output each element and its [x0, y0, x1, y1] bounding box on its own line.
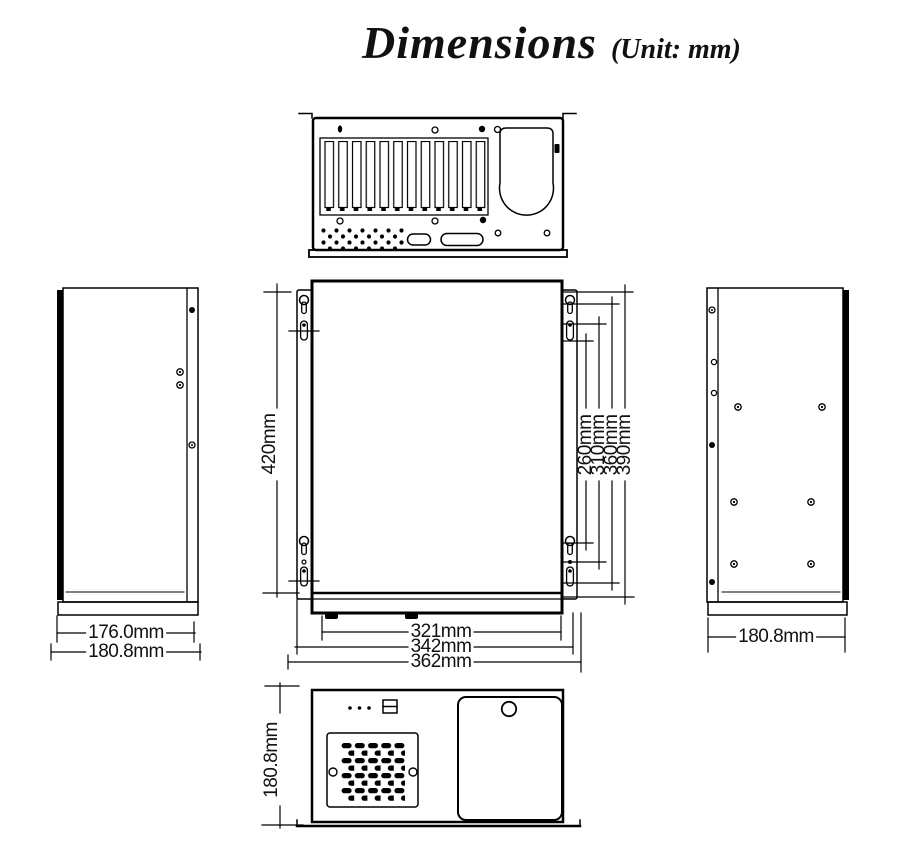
left-mount-flange: [297, 290, 312, 599]
dimension-lines: [51, 284, 845, 828]
dim-label-362mm: 362mm: [409, 653, 474, 671]
db25-connector: [441, 234, 483, 246]
rubber-foot: [405, 613, 418, 619]
left-view-base: [58, 602, 198, 615]
right-side-view: [707, 288, 849, 615]
psu-cutout: [500, 128, 554, 215]
dim-label-180.8mm-left: 180.8mm: [86, 643, 166, 661]
lock-hole: [502, 702, 516, 716]
top-rear-view: [299, 114, 576, 258]
dimensions-page: Dimensions (Unit: mm): [0, 0, 902, 868]
dimension-drawing: [0, 0, 902, 868]
left-keyhole-slots: [289, 296, 319, 587]
rear-left-flange-tab: [299, 114, 312, 119]
right-view-panel: [707, 288, 843, 602]
expansion-slots: [320, 138, 488, 215]
led-indicators: [348, 706, 371, 710]
psu-side-clip: [555, 144, 560, 153]
front-door-panel: [458, 697, 562, 820]
dim-label-180.8mm-front: 180.8mm: [265, 722, 279, 798]
right-view-front-edge: [843, 290, 849, 600]
db9-connector: [408, 234, 431, 245]
usb-port-icon: [383, 700, 397, 713]
left-side-view: [57, 288, 198, 615]
dim-label-420mm: 420mm: [263, 414, 277, 475]
chassis-body: [312, 281, 562, 613]
vent-grille: [341, 742, 405, 801]
wall-mount-view: [289, 281, 577, 619]
rear-right-flange-tab: [563, 114, 576, 119]
left-view-front-edge: [57, 290, 63, 600]
dim-label-180.8mm-right: 180.8mm: [736, 628, 816, 646]
front-vent-panel: [327, 733, 418, 807]
right-view-screw-holes: [709, 307, 825, 585]
front-panel-view: [297, 690, 580, 826]
left-view-panel: [63, 288, 198, 602]
dim-label-176.0mm: 176.0mm: [86, 624, 166, 642]
right-view-base: [708, 602, 847, 615]
left-view-screw-holes: [177, 307, 195, 448]
dim-label-390mm: 390mm: [618, 415, 632, 476]
rear-vent-holes: [320, 227, 405, 250]
rubber-foot: [325, 613, 338, 619]
